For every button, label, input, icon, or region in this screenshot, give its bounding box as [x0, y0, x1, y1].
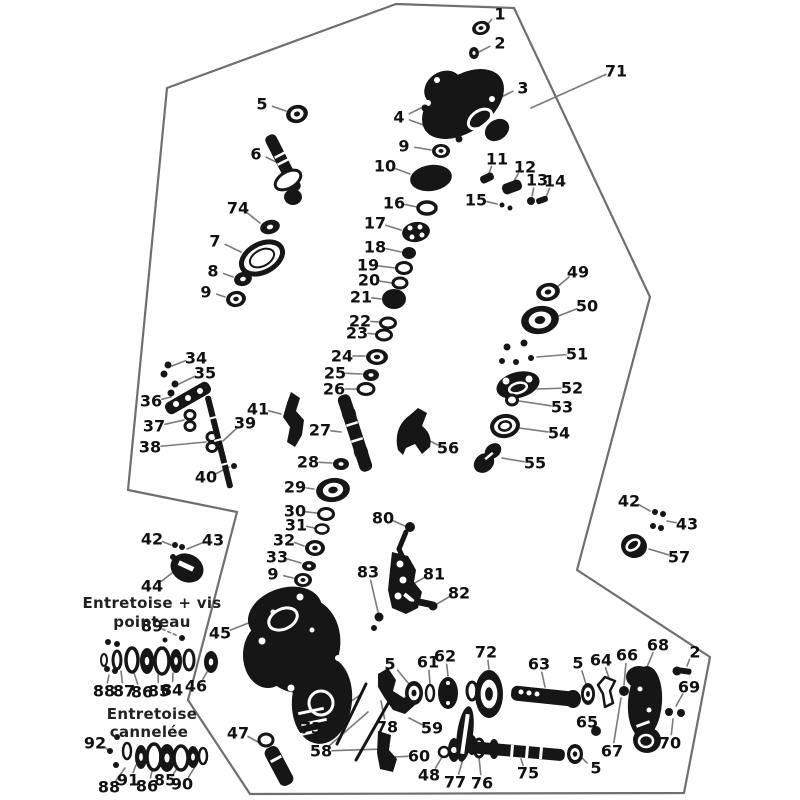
leader-66: [624, 663, 626, 685]
part-47-glyph: [259, 734, 273, 746]
leader-19: [379, 266, 395, 268]
part-14-glyph: [535, 195, 548, 205]
leader-2: [479, 46, 490, 52]
part-88-glyph: [104, 666, 110, 672]
leader-23: [368, 333, 375, 334]
callout-14: 14: [544, 172, 566, 191]
part-3-glyph: [434, 77, 440, 83]
leader-53: [519, 401, 551, 406]
callout-11: 11: [486, 150, 508, 169]
leader-58: [332, 749, 383, 751]
callout-15: 15: [465, 191, 487, 210]
leader-70: [671, 719, 673, 735]
part-49-glyph: [534, 281, 561, 304]
callout-57: 57: [668, 548, 690, 567]
part-68-glyph: [638, 687, 643, 692]
part-90-glyph: [199, 748, 207, 764]
part-23-glyph: [377, 330, 392, 340]
callout-74: 74: [227, 199, 249, 218]
part-63-glyph: [527, 691, 532, 696]
leader-71: [531, 74, 606, 108]
leader-37: [165, 420, 184, 424]
part-86-glyph: [147, 744, 161, 770]
leader-72: [488, 660, 489, 669]
part-54-glyph: [498, 421, 511, 432]
callout-53: 53: [551, 398, 573, 417]
part-46-glyph: [184, 650, 194, 670]
part-84-glyph: [101, 654, 107, 666]
part-81-glyph: [400, 577, 407, 584]
part-17-glyph: [418, 225, 423, 230]
part-62-glyph: [446, 701, 450, 705]
leader-9: [284, 576, 293, 578]
callout-56: 56: [437, 439, 459, 458]
part-46-glyph: [209, 658, 213, 665]
callout-54: 54: [548, 424, 570, 443]
part-51-glyph: [499, 358, 505, 364]
part-42-glyph: [179, 544, 185, 550]
callout-9: 9: [200, 283, 211, 302]
leader-16: [405, 204, 417, 207]
callout-42: 42: [141, 530, 163, 549]
callout-84: 84: [161, 681, 183, 700]
leader-43: [667, 521, 676, 523]
leader-57: [649, 549, 668, 555]
callout-1: 1: [494, 5, 505, 24]
callout-5: 5: [572, 654, 583, 673]
callout-10: 10: [374, 157, 396, 176]
callout-29: 29: [284, 478, 306, 497]
part-4-glyph: [422, 105, 429, 112]
part-30-glyph: [319, 509, 334, 520]
note-spacer-splined-line2: cannelée: [110, 723, 188, 741]
callout-78: 78: [376, 718, 398, 737]
callout-58: 58: [310, 742, 332, 761]
leader-52: [537, 388, 561, 389]
callout-69: 69: [678, 678, 700, 697]
part-85-glyph: [155, 648, 169, 674]
callout-45: 45: [209, 624, 231, 643]
leader-63: [542, 672, 545, 687]
part-87-glyph: [114, 641, 120, 647]
callout-76: 76: [471, 774, 493, 793]
part-34-glyph: [161, 371, 168, 378]
callout-2: 2: [494, 34, 505, 53]
callout-90: 90: [171, 775, 193, 794]
part-25-glyph: [368, 373, 373, 377]
part-60-glyph: [377, 731, 397, 772]
part-11-glyph: [479, 171, 495, 184]
part-38-glyph: [207, 443, 217, 452]
leader-17: [386, 225, 401, 230]
part-52-glyph: [526, 376, 533, 383]
part-15-glyph: [508, 206, 513, 211]
callout-68: 68: [647, 636, 669, 655]
part-84-glyph: [174, 657, 178, 665]
leader-4: [409, 108, 421, 114]
part-69-glyph: [665, 708, 673, 716]
part-17-glyph: [400, 220, 431, 245]
part-88-glyph: [105, 639, 111, 645]
leader-38: [161, 442, 206, 446]
part-24-glyph: [366, 349, 388, 365]
callout-43: 43: [676, 515, 698, 534]
leader-7: [225, 244, 241, 252]
part-42-glyph: [660, 511, 666, 517]
part-51-glyph: [513, 359, 519, 365]
part-5-glyph: [405, 681, 423, 705]
part-45-glyph: [310, 628, 315, 633]
callout-5: 5: [384, 655, 395, 674]
part-22-glyph: [381, 318, 396, 328]
callout-44: 44: [141, 577, 163, 596]
callout-55: 55: [524, 454, 546, 473]
part-83-glyph: [375, 613, 384, 622]
leader-10: [395, 169, 410, 174]
leader-34: [172, 361, 186, 366]
leader-67: [614, 698, 621, 743]
part-61-glyph: [426, 685, 434, 701]
part-81-glyph: [397, 561, 404, 568]
callout-37: 37: [143, 417, 165, 436]
callout-59: 59: [421, 719, 443, 738]
part-63-glyph: [519, 690, 524, 695]
part-16-glyph: [418, 202, 436, 214]
callout-8: 8: [207, 262, 218, 281]
part-2-glyph: [472, 51, 475, 55]
part-17-glyph: [408, 226, 413, 231]
leader-42: [639, 505, 650, 511]
callout-4: 4: [393, 108, 404, 127]
part-86-glyph: [126, 648, 138, 672]
callout-6: 6: [250, 145, 261, 164]
exploded-parts-diagram: 1237149101112131415165674789171819202122…: [0, 0, 800, 800]
part-42-glyph: [172, 542, 178, 548]
note-spacer-needle-line2: pointeau: [113, 613, 190, 631]
part-50-glyph: [519, 303, 561, 337]
part-9-glyph: [432, 144, 450, 158]
callout-67: 67: [601, 742, 623, 761]
part-3-glyph: [489, 96, 495, 102]
note-spacer-needle-line1: Entretoise + vis: [82, 594, 221, 612]
diagram-border: [128, 4, 710, 794]
part-37-glyph: [185, 411, 195, 420]
callout-70: 70: [659, 734, 681, 753]
leader-33: [288, 559, 301, 563]
callout-27: 27: [309, 421, 331, 440]
part-6-glyph: [284, 189, 302, 205]
part-29-glyph: [314, 476, 351, 504]
leader-18: [386, 249, 401, 252]
part-75-glyph: [467, 735, 477, 755]
callout-65: 65: [576, 713, 598, 732]
part-68-glyph: [626, 666, 652, 688]
leader-76: [479, 757, 481, 775]
part-34-glyph: [165, 362, 172, 369]
leader-30: [306, 512, 317, 513]
part-85-glyph: [113, 651, 121, 669]
leader-28: [319, 462, 332, 463]
leader-80: [393, 521, 405, 526]
callout-16: 16: [383, 194, 405, 213]
part-40-glyph: [231, 463, 237, 469]
leader-62: [447, 664, 448, 676]
callout-47: 47: [227, 724, 249, 743]
part-4-glyph: [456, 136, 463, 143]
part-5-glyph: [284, 102, 310, 125]
part-32-glyph: [305, 540, 325, 556]
part-72-glyph: [475, 670, 503, 718]
callout-88: 88: [93, 682, 115, 701]
exploded-parts-diagram-page: 1237149101112131415165674789171819202122…: [0, 0, 800, 800]
part-52-glyph: [503, 378, 510, 385]
part-9-glyph: [225, 289, 247, 308]
callout-92: 92: [84, 734, 106, 753]
leader-68: [647, 653, 653, 667]
callout-80: 80: [372, 509, 394, 528]
part-19-glyph: [397, 263, 412, 274]
part-86-glyph: [164, 754, 169, 763]
callout-52: 52: [561, 379, 583, 398]
leader-61: [429, 670, 430, 684]
leader-22: [371, 321, 379, 322]
part-3-glyph: [452, 65, 458, 71]
part-36-glyph: [197, 388, 203, 394]
callout-49: 49: [567, 263, 589, 282]
part-90-glyph: [191, 753, 195, 760]
part-13-glyph: [527, 197, 535, 205]
part-3-glyph: [465, 137, 471, 143]
callout-23: 23: [346, 324, 368, 343]
callout-43: 43: [202, 531, 224, 550]
leader-35: [179, 376, 195, 384]
leader-55: [502, 458, 524, 462]
note-spacer-splined-line1: Entretoise: [107, 705, 197, 723]
callout-26: 26: [323, 380, 345, 399]
part-36-glyph: [185, 395, 191, 401]
callout-9: 9: [267, 565, 278, 584]
callout-50: 50: [576, 297, 598, 316]
part-57-glyph: [619, 532, 649, 560]
callout-51: 51: [566, 345, 588, 364]
part-51-glyph: [521, 340, 528, 347]
part-35-glyph: [168, 390, 175, 397]
leader-41: [269, 411, 281, 414]
part-17-glyph: [410, 235, 415, 240]
part-82-glyph: [405, 602, 414, 603]
callout-40: 40: [195, 468, 217, 487]
part-9-glyph: [294, 573, 312, 587]
leader-5: [273, 106, 286, 111]
part-68-glyph: [647, 708, 652, 713]
callout-75: 75: [517, 764, 539, 783]
part-28-glyph: [338, 462, 343, 466]
part-83-glyph: [371, 625, 377, 631]
leader-9: [415, 147, 431, 150]
part-2-glyph: [673, 667, 682, 676]
part-33-glyph: [307, 564, 311, 567]
part-86-glyph: [145, 657, 149, 665]
leader-20: [380, 281, 392, 283]
leader-54: [519, 428, 548, 432]
part-77-glyph: [451, 747, 457, 753]
leader-27: [331, 431, 341, 432]
leader-51: [537, 355, 566, 357]
callout-64: 64: [590, 651, 612, 670]
leader-25: [346, 373, 362, 374]
leader-36: [162, 397, 171, 399]
part-70-glyph: [677, 709, 685, 717]
part-31-glyph: [316, 525, 329, 534]
part-91-glyph: [123, 743, 131, 759]
part-43-glyph: [658, 525, 664, 531]
leader-15: [487, 202, 497, 204]
callout-48: 48: [418, 766, 440, 785]
part-37-glyph: [185, 422, 195, 431]
leader-42: [162, 542, 171, 545]
leader-60: [393, 756, 408, 757]
part-36-glyph: [173, 401, 179, 407]
callout-62: 62: [434, 647, 456, 666]
part-66-glyph: [619, 686, 629, 696]
part-62-glyph: [446, 681, 450, 685]
part-68-glyph: [633, 727, 661, 753]
part-45-glyph: [288, 685, 295, 692]
part-89-glyph: [163, 638, 168, 643]
callout-63: 63: [528, 655, 550, 674]
leader-5: [398, 670, 409, 684]
part-82-glyph: [429, 602, 438, 611]
part-75-glyph: [489, 739, 499, 759]
part-63-glyph: [535, 692, 540, 697]
part-92-glyph: [113, 762, 119, 768]
part-51-glyph: [504, 344, 511, 351]
part-51-glyph: [528, 355, 534, 361]
leader-21: [372, 298, 381, 299]
callout-42: 42: [618, 492, 640, 511]
callout-35: 35: [194, 364, 216, 383]
part-45-glyph: [271, 610, 276, 615]
callout-21: 21: [350, 288, 372, 307]
part-6-glyph: [272, 166, 304, 194]
part-92-glyph: [107, 748, 113, 754]
part-1-glyph: [470, 19, 491, 37]
part-81-glyph: [395, 593, 402, 600]
part-43-glyph: [650, 523, 656, 529]
part-63-glyph: [565, 690, 581, 708]
leader-29: [306, 488, 314, 489]
part-20-glyph: [393, 278, 407, 288]
part-88-glyph: [139, 753, 143, 761]
part-47-glyph: [263, 744, 296, 788]
callout-46: 46: [185, 677, 207, 696]
callout-17: 17: [364, 214, 386, 233]
leader-8: [224, 273, 233, 277]
callout-66: 66: [616, 646, 638, 665]
callout-7: 7: [209, 232, 220, 251]
part-85-glyph: [174, 746, 188, 770]
callout-28: 28: [297, 453, 319, 472]
part-15-glyph: [500, 203, 505, 208]
leader-31: [307, 526, 314, 528]
callout-36: 36: [140, 392, 162, 411]
part-48-glyph: [439, 747, 449, 757]
callout-73: 73: [300, 719, 322, 738]
leader-43: [187, 543, 203, 549]
callout-60: 60: [408, 747, 430, 766]
leader-83: [371, 580, 378, 612]
callout-18: 18: [364, 238, 386, 257]
part-56-glyph: [397, 408, 431, 455]
callout-81: 81: [423, 565, 445, 584]
callout-72: 72: [475, 643, 497, 662]
part-18-glyph: [402, 247, 416, 259]
leader-47: [248, 736, 258, 742]
callout-82: 82: [448, 584, 470, 603]
callout-77: 77: [444, 773, 466, 792]
part-80-glyph: [399, 532, 406, 549]
part-35-glyph: [172, 381, 179, 388]
part-75-glyph: [567, 744, 583, 764]
callout-83: 83: [357, 563, 379, 582]
part-17-glyph: [420, 233, 425, 238]
leader-32: [295, 542, 304, 546]
callout-2: 2: [689, 643, 700, 662]
part-21-glyph: [382, 289, 406, 309]
part-53-glyph: [507, 395, 518, 405]
callout-5: 5: [256, 95, 267, 114]
part-45-glyph: [259, 638, 266, 645]
part-10-glyph: [408, 162, 453, 194]
callout-71: 71: [605, 62, 627, 81]
leader-45: [230, 622, 251, 630]
part-45-glyph: [297, 594, 304, 601]
part-45-glyph: [335, 655, 341, 661]
part-89-glyph: [179, 635, 185, 641]
part-12-glyph: [501, 178, 524, 195]
callout-9: 9: [398, 137, 409, 156]
part-64-glyph: [598, 677, 615, 707]
part-42-glyph: [652, 509, 658, 515]
callout-5: 5: [590, 759, 601, 778]
callout-41: 41: [247, 400, 269, 419]
leader-5: [582, 671, 586, 684]
part-41-glyph: [283, 392, 304, 447]
leader-9: [217, 294, 225, 297]
callout-38: 38: [139, 438, 161, 457]
part-5-glyph: [581, 683, 595, 705]
callout-3: 3: [517, 79, 528, 98]
part-26-glyph: [358, 384, 374, 395]
leader-50: [556, 309, 577, 317]
